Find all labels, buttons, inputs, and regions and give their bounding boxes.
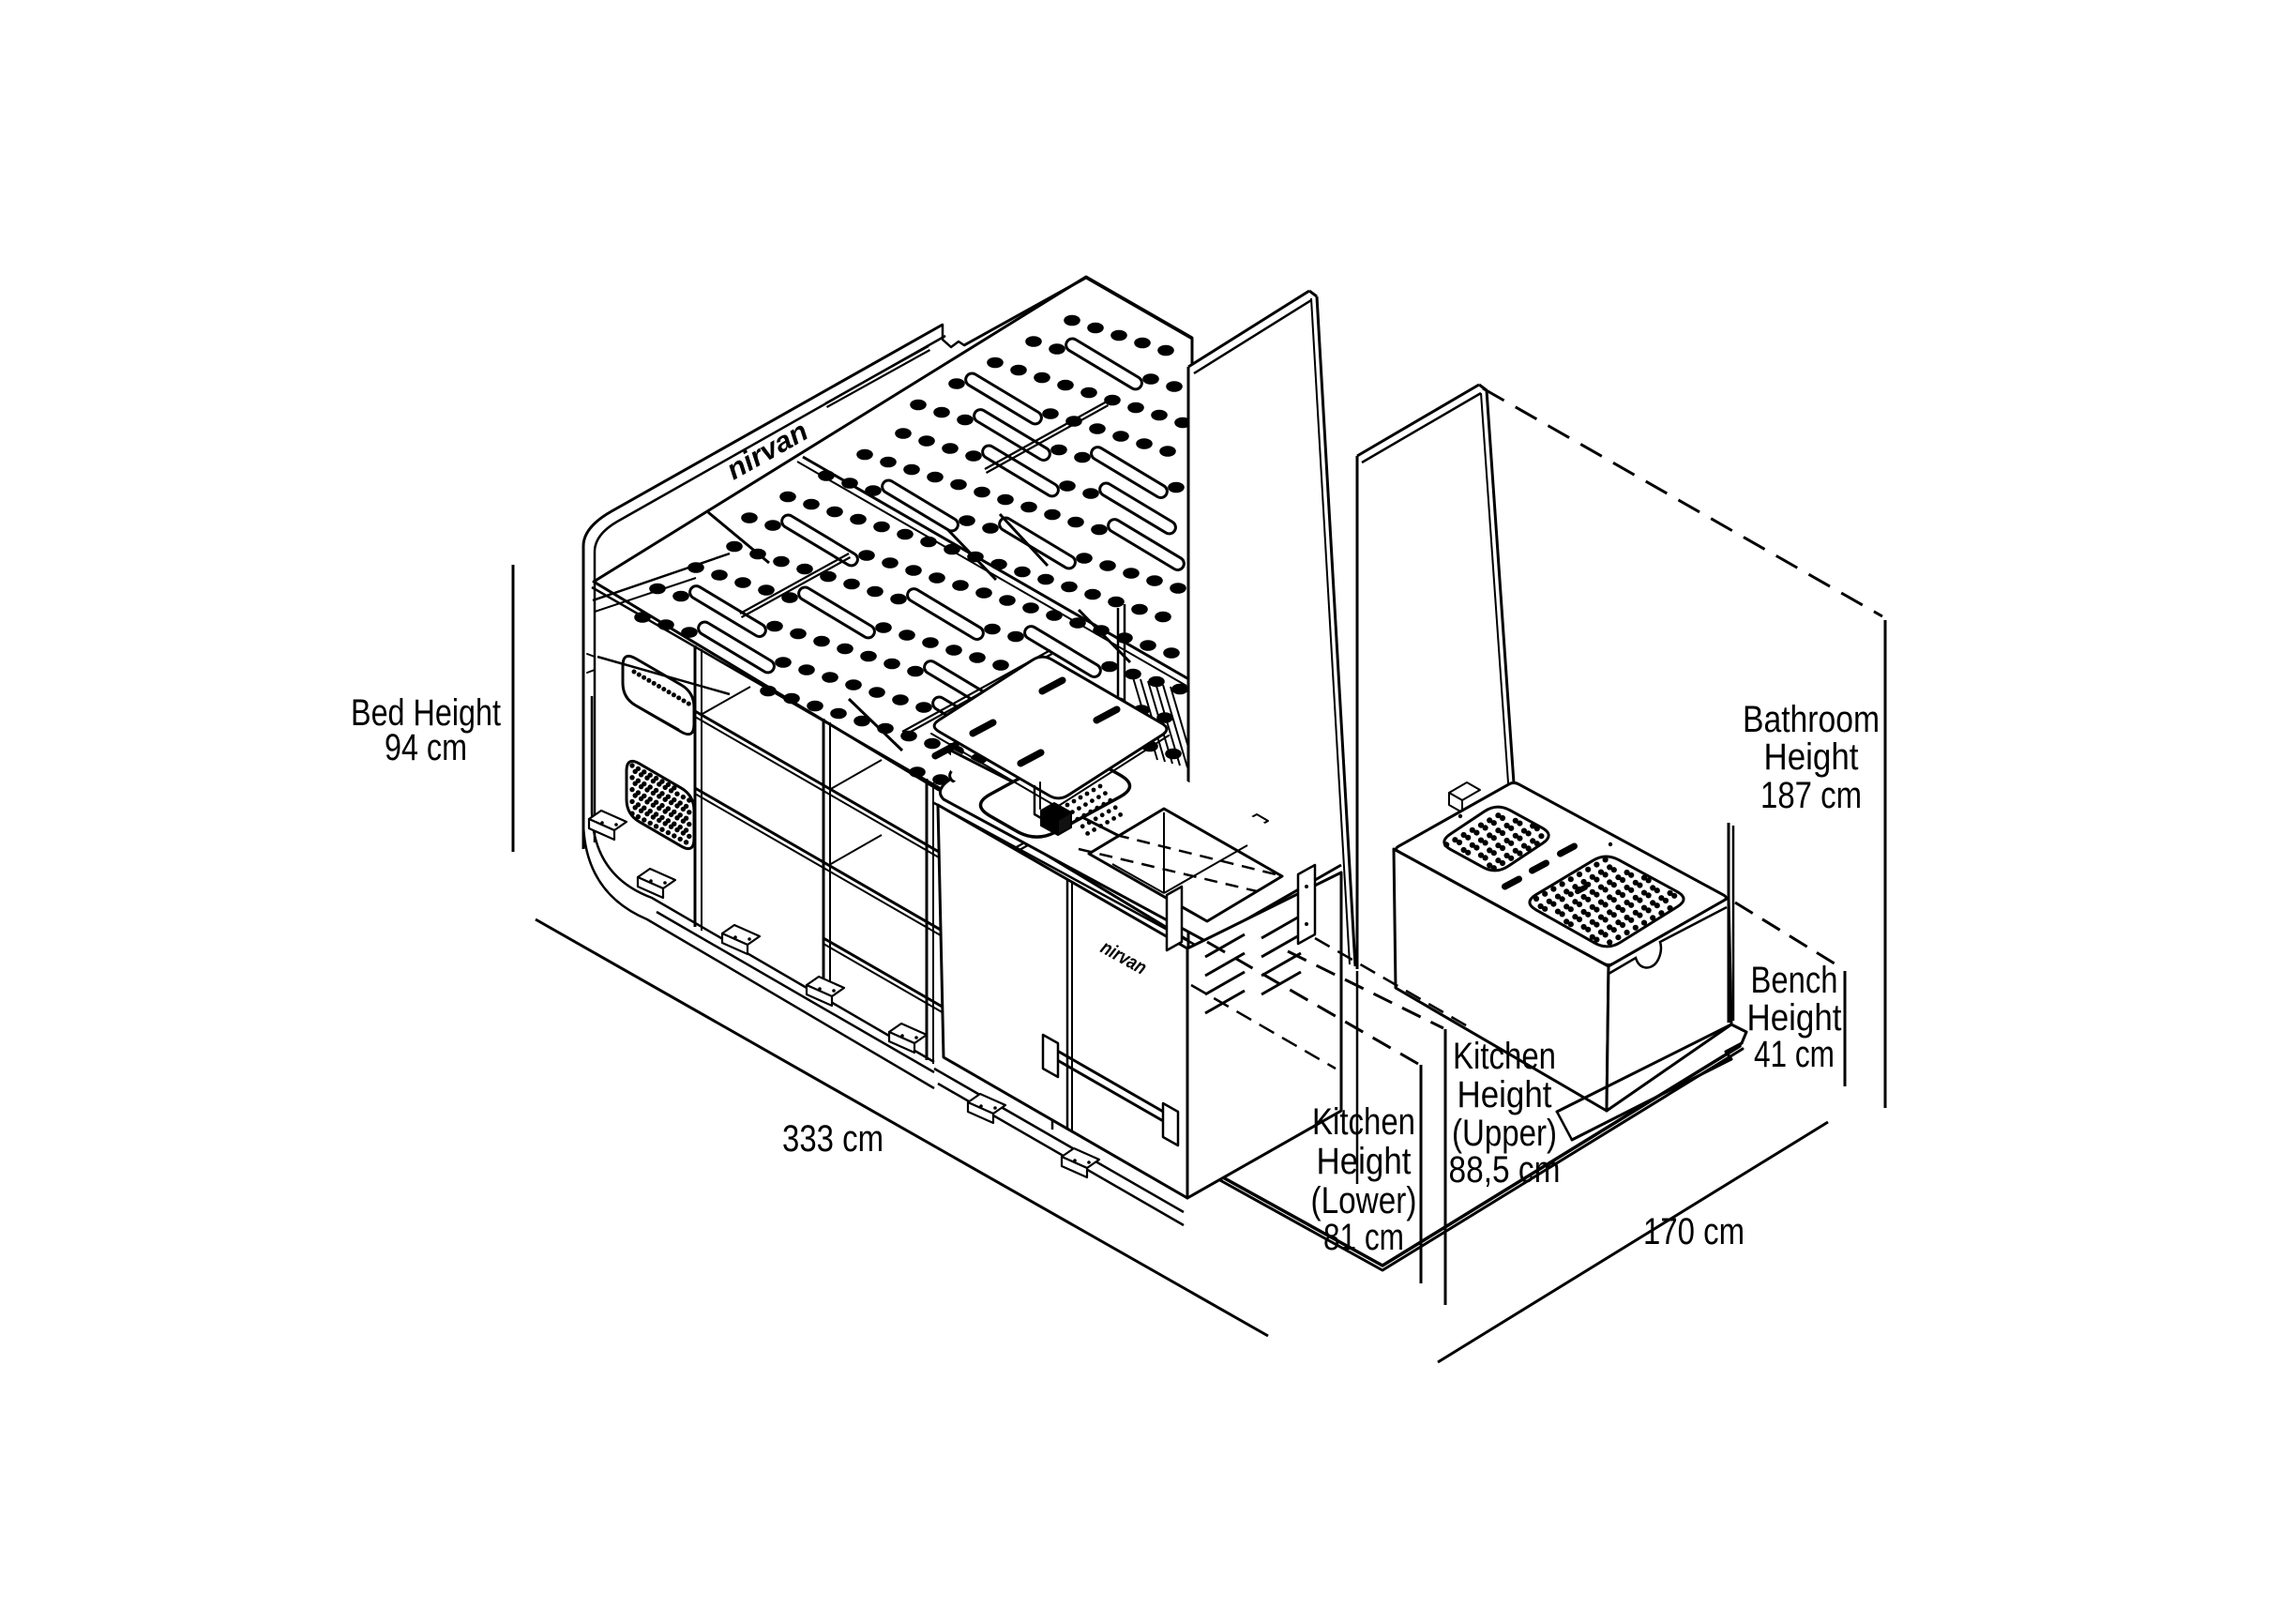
svg-text:333 cm: 333 cm bbox=[782, 1118, 884, 1160]
svg-text:Height: Height bbox=[1317, 1141, 1412, 1182]
svg-text:187 cm: 187 cm bbox=[1760, 775, 1862, 816]
svg-text:Bathroom: Bathroom bbox=[1743, 699, 1880, 740]
svg-text:Height: Height bbox=[1747, 997, 1842, 1039]
svg-text:(Lower): (Lower) bbox=[1311, 1180, 1417, 1221]
svg-text:Kitchen: Kitchen bbox=[1312, 1101, 1415, 1143]
svg-text:Height: Height bbox=[1458, 1074, 1552, 1115]
svg-text:41 cm: 41 cm bbox=[1754, 1034, 1835, 1075]
svg-text:Kitchen: Kitchen bbox=[1453, 1036, 1556, 1077]
svg-text:Height: Height bbox=[1764, 736, 1859, 778]
svg-text:88,5 cm: 88,5 cm bbox=[1449, 1149, 1561, 1191]
svg-text:Bench: Bench bbox=[1751, 960, 1838, 1001]
svg-text:(Upper): (Upper) bbox=[1452, 1113, 1557, 1154]
svg-text:94 cm: 94 cm bbox=[385, 727, 467, 768]
svg-text:170 cm: 170 cm bbox=[1643, 1211, 1745, 1252]
svg-text:81 cm: 81 cm bbox=[1323, 1217, 1404, 1258]
